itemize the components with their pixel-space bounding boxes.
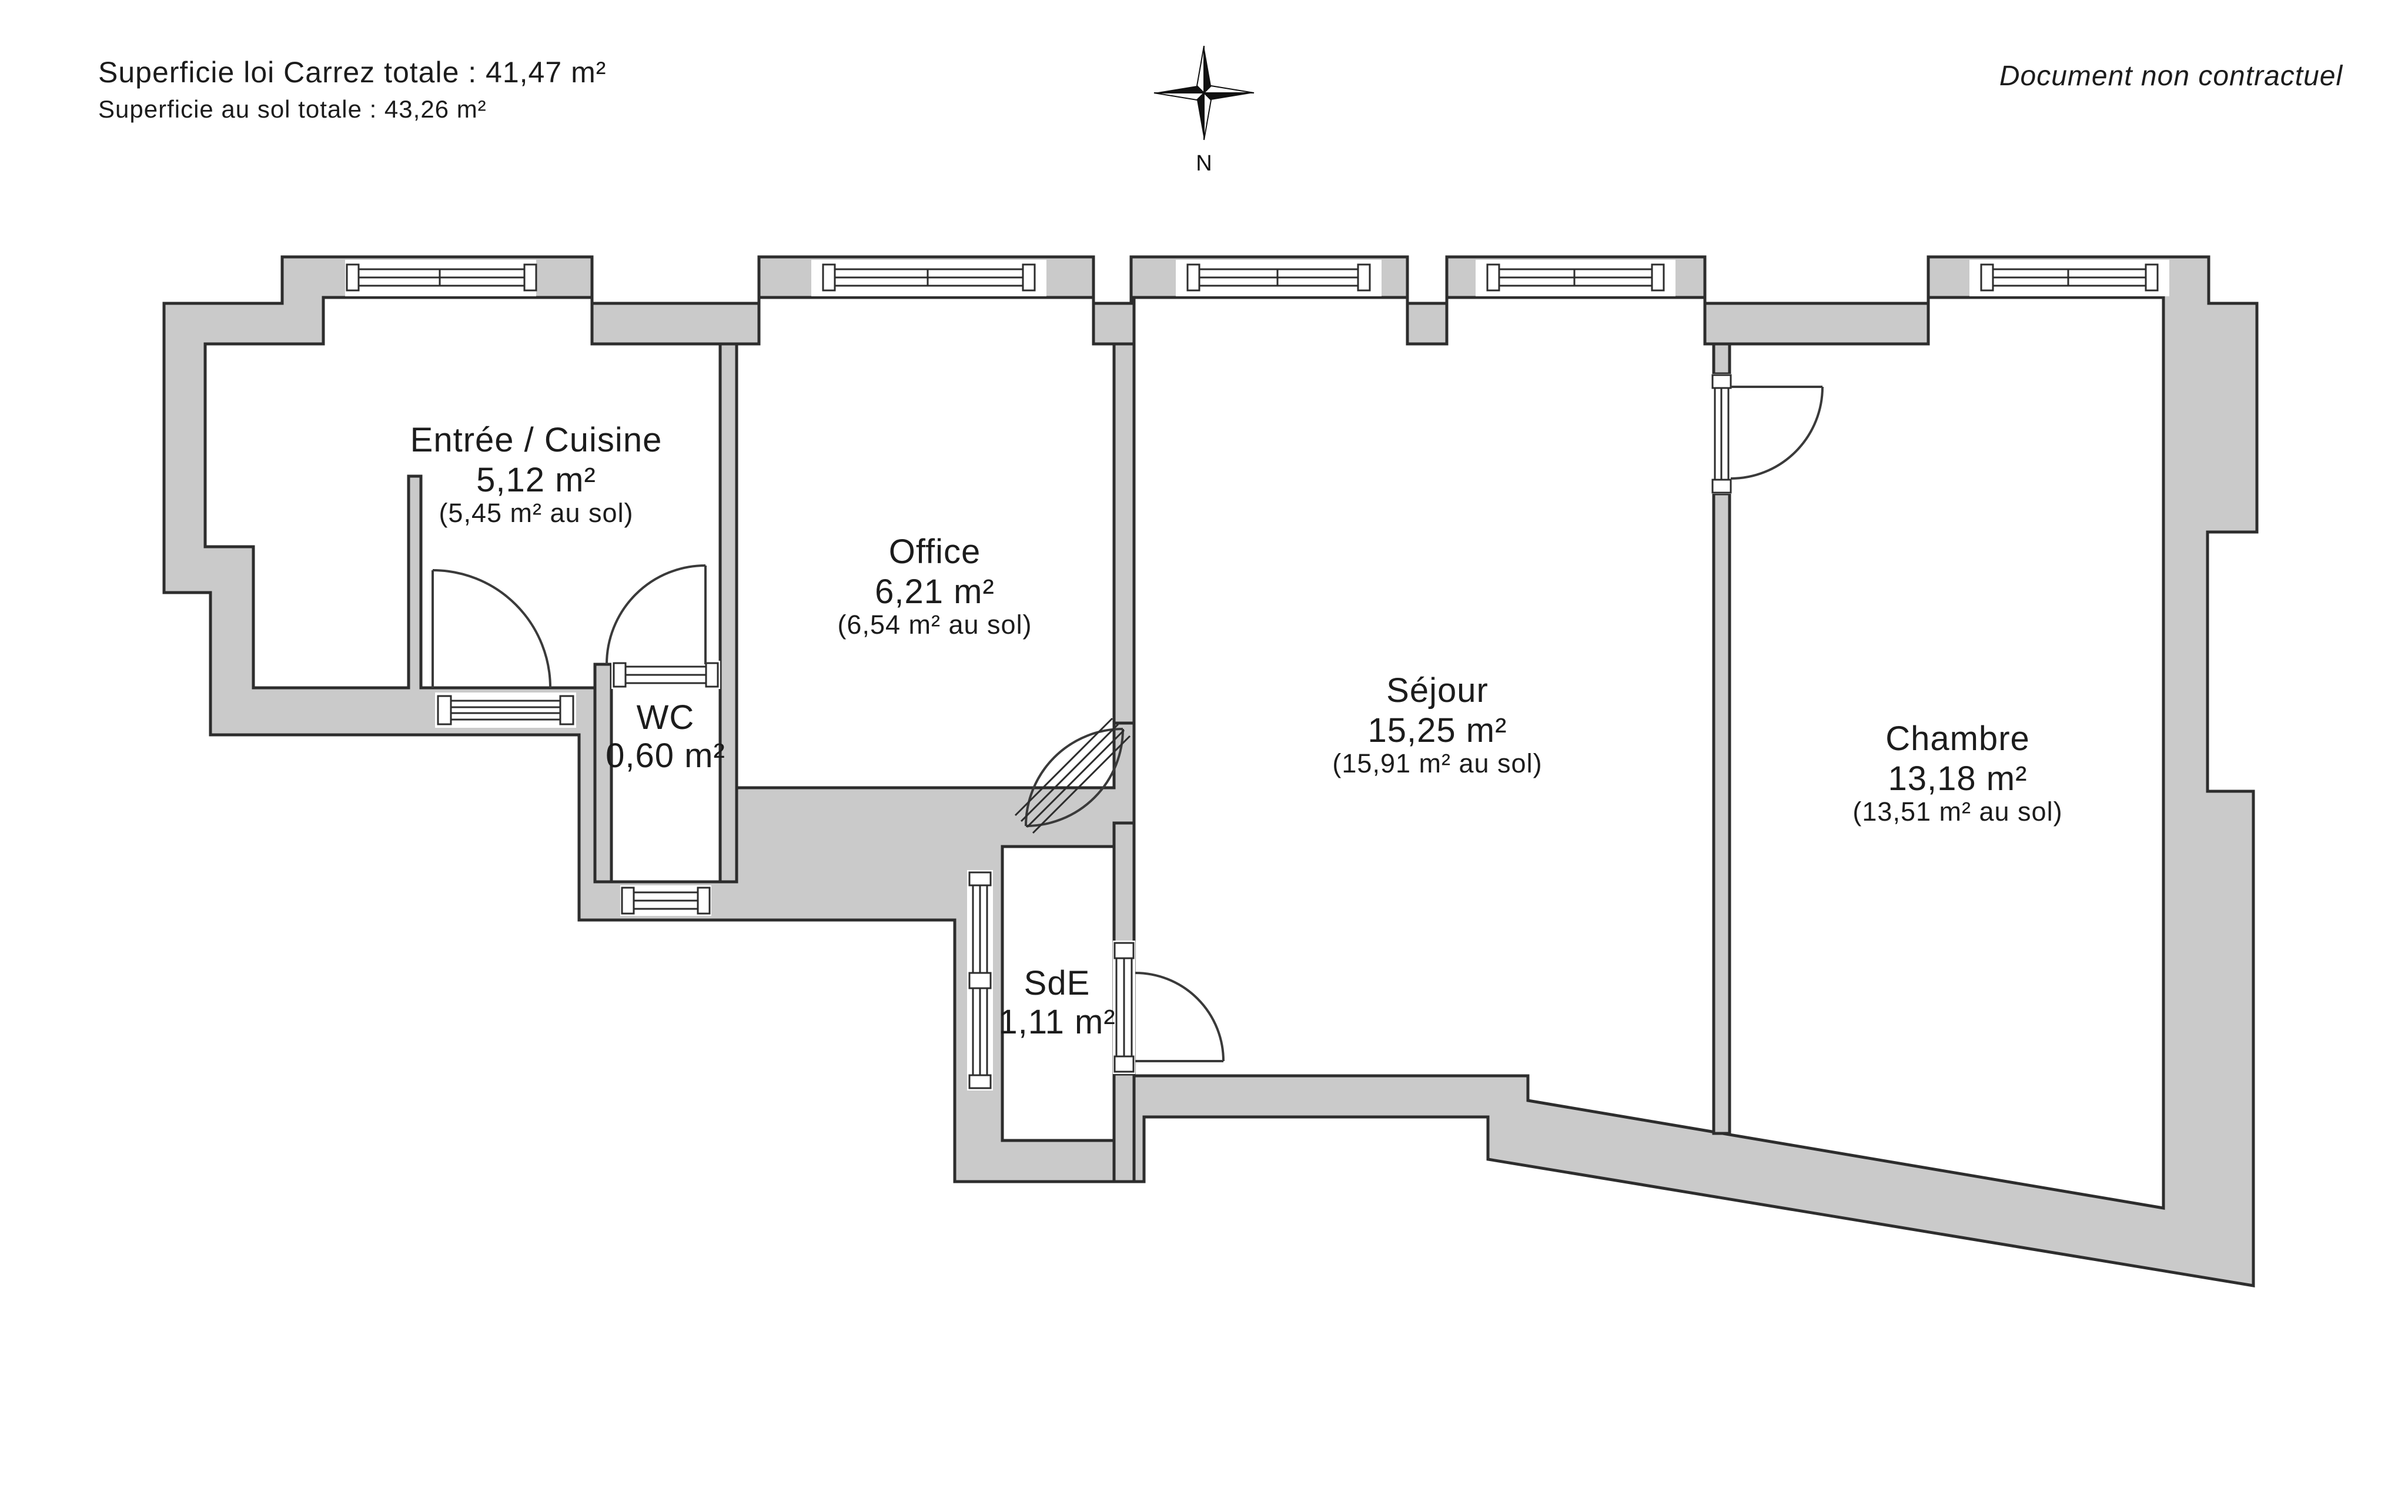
room-floor-area: (5,45 m² au sol) [439,498,633,528]
compass-north-label: N [1196,151,1212,176]
room-area: 13,18 m² [1888,760,2028,798]
room-name: Entrée / Cuisine [410,421,663,459]
floor-plan-page: N Superficie loi Carrez totale : 41,47 m… [0,0,2408,1512]
window-symbol-4 [1487,265,1664,290]
wall-sejour-chambre-lower [1714,494,1730,1133]
room-area: 5,12 m² [476,461,596,499]
room-name: Chambre [1885,720,2030,758]
window-symbol-sejour-chambre [1711,374,1732,494]
compass-rose-icon [1154,46,1254,140]
room-area: 6,21 m² [875,573,995,611]
window-symbol-sde-door [1113,941,1135,1074]
room-floor-area: (13,51 m² au sol) [1852,797,2062,827]
wall-office-sejour-upper [1114,344,1134,723]
wall-entree-office-divider [720,344,737,882]
room-floor-area: (15,91 m² au sol) [1332,748,1542,778]
wall-sejour-chambre-upper [1714,344,1730,374]
room-name: WC [637,698,695,737]
window-symbol-5 [1981,265,2158,290]
window-symbol-1 [347,265,536,290]
floor-plan-canvas: N Superficie loi Carrez totale : 41,47 m… [0,0,2408,1512]
room-entree-cuisine [205,297,720,688]
room-area: 1,11 m² [998,1003,1115,1041]
window-symbol-wc-bottom [620,885,711,916]
window-symbol-3 [1188,265,1370,290]
room-name: Séjour [1386,671,1489,710]
header-floor-total: Superficie au sol totale : 43,26 m² [98,95,487,123]
room-name: SdE [1024,964,1091,1002]
header-disclaimer: Document non contractuel [1999,61,2343,92]
window-symbol-sde-left [967,870,993,1090]
wall-office-sejour-lower [1114,823,1134,954]
room-area: 15,25 m² [1368,711,1507,750]
window-symbol-2 [823,265,1035,290]
window-symbol-entree-bottom [435,693,576,728]
room-area: 0,60 m² [606,737,725,775]
room-name: Office [889,533,981,571]
wall-sde-right-lower [1114,1074,1134,1182]
window-symbol-wc-top [611,661,720,689]
header-carrez-total: Superficie loi Carrez totale : 41,47 m² [98,56,606,89]
room-floor-area: (6,54 m² au sol) [837,610,1032,640]
